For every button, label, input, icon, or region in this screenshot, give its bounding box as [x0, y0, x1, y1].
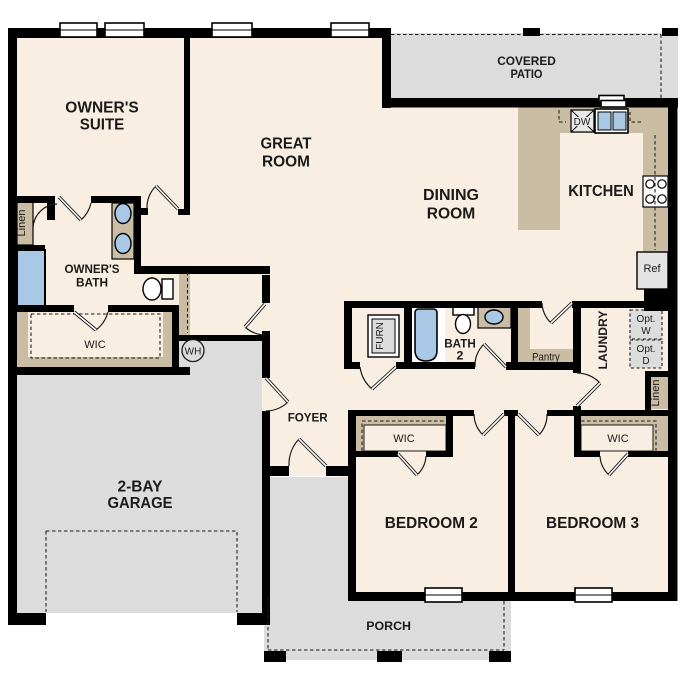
- svg-text:Opt.: Opt.: [637, 344, 656, 355]
- svg-text:PATIO: PATIO: [511, 67, 543, 81]
- svg-text:BEDROOM 3: BEDROOM 3: [546, 515, 639, 532]
- svg-text:W: W: [641, 326, 651, 337]
- svg-text:WIC: WIC: [607, 433, 628, 445]
- svg-text:FOYER: FOYER: [288, 411, 328, 425]
- svg-text:ROOM: ROOM: [427, 205, 476, 222]
- svg-text:Opt.: Opt.: [637, 314, 656, 325]
- svg-text:OWNER'S: OWNER'S: [65, 100, 139, 117]
- svg-text:PORCH: PORCH: [366, 619, 411, 633]
- svg-text:Linen: Linen: [16, 210, 28, 237]
- svg-text:Ref: Ref: [643, 263, 661, 275]
- svg-text:KITCHEN: KITCHEN: [568, 183, 634, 200]
- svg-text:ROOM: ROOM: [262, 154, 310, 171]
- svg-text:WIC: WIC: [393, 433, 414, 445]
- svg-text:BATH: BATH: [76, 276, 108, 290]
- svg-text:GREAT: GREAT: [261, 135, 313, 152]
- svg-text:FURN: FURN: [375, 322, 386, 350]
- svg-text:Pantry: Pantry: [532, 352, 560, 364]
- svg-text:GARAGE: GARAGE: [108, 495, 173, 512]
- svg-text:2-BAY: 2-BAY: [118, 478, 163, 495]
- svg-text:SUITE: SUITE: [80, 116, 125, 133]
- svg-text:2: 2: [457, 349, 464, 363]
- svg-text:D: D: [642, 356, 649, 367]
- svg-text:DINING: DINING: [423, 187, 479, 204]
- svg-text:WH: WH: [185, 347, 202, 358]
- svg-text:Linen: Linen: [650, 380, 662, 407]
- svg-text:BEDROOM 2: BEDROOM 2: [385, 515, 478, 532]
- svg-text:COVERED: COVERED: [497, 54, 556, 68]
- svg-text:LAUNDRY: LAUNDRY: [596, 310, 610, 370]
- svg-text:OWNER'S: OWNER'S: [65, 262, 120, 276]
- svg-text:WIC: WIC: [84, 339, 105, 351]
- svg-text:DW: DW: [574, 117, 591, 128]
